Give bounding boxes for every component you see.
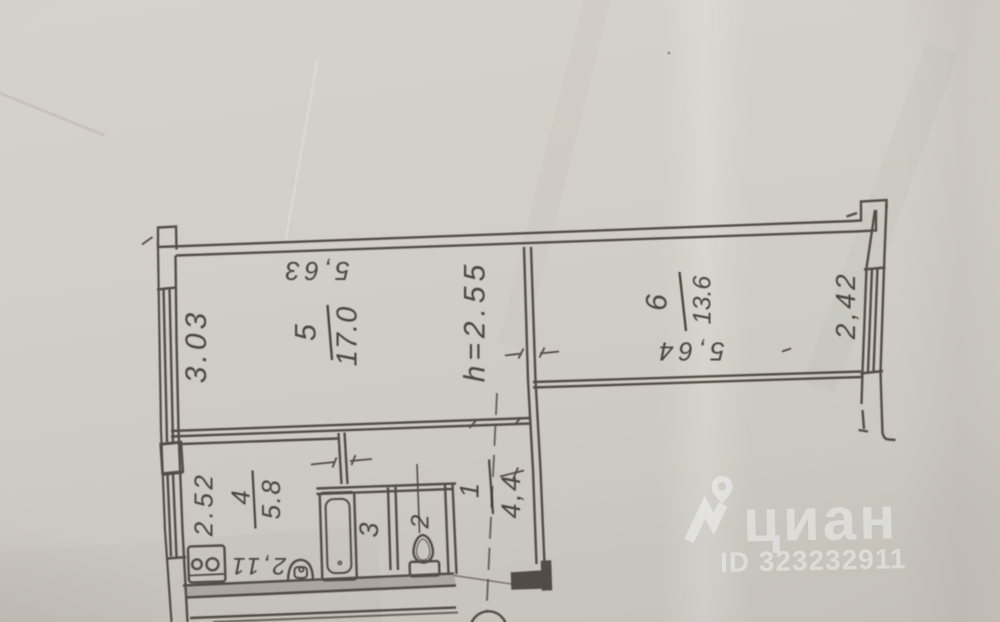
svg-text:17.0: 17.0 [332,306,364,366]
svg-text:5.8: 5.8 [256,479,286,520]
svg-text:3.03: 3.03 [180,309,213,383]
svg-text:4,4: 4,4 [496,473,526,518]
svg-text:3: 3 [354,522,384,537]
svg-text:1: 1 [455,483,485,498]
svg-text:5,64: 5,64 [654,337,725,367]
svg-text:5: 5 [290,324,323,341]
svg-text:2.52: 2.52 [189,472,219,538]
svg-text:5,63: 5,63 [281,256,350,286]
svg-text:6: 6 [641,294,674,311]
svg-text:ID 323232911: ID 323232911 [720,543,907,578]
svg-text:2,11: 2,11 [229,552,287,579]
svg-text:2,42: 2,42 [830,271,861,341]
svg-text:4: 4 [226,490,256,504]
svg-text:13.6: 13.6 [689,276,717,325]
svg-text:2: 2 [407,514,435,529]
svg-text:h=2.55: h=2.55 [459,260,492,383]
